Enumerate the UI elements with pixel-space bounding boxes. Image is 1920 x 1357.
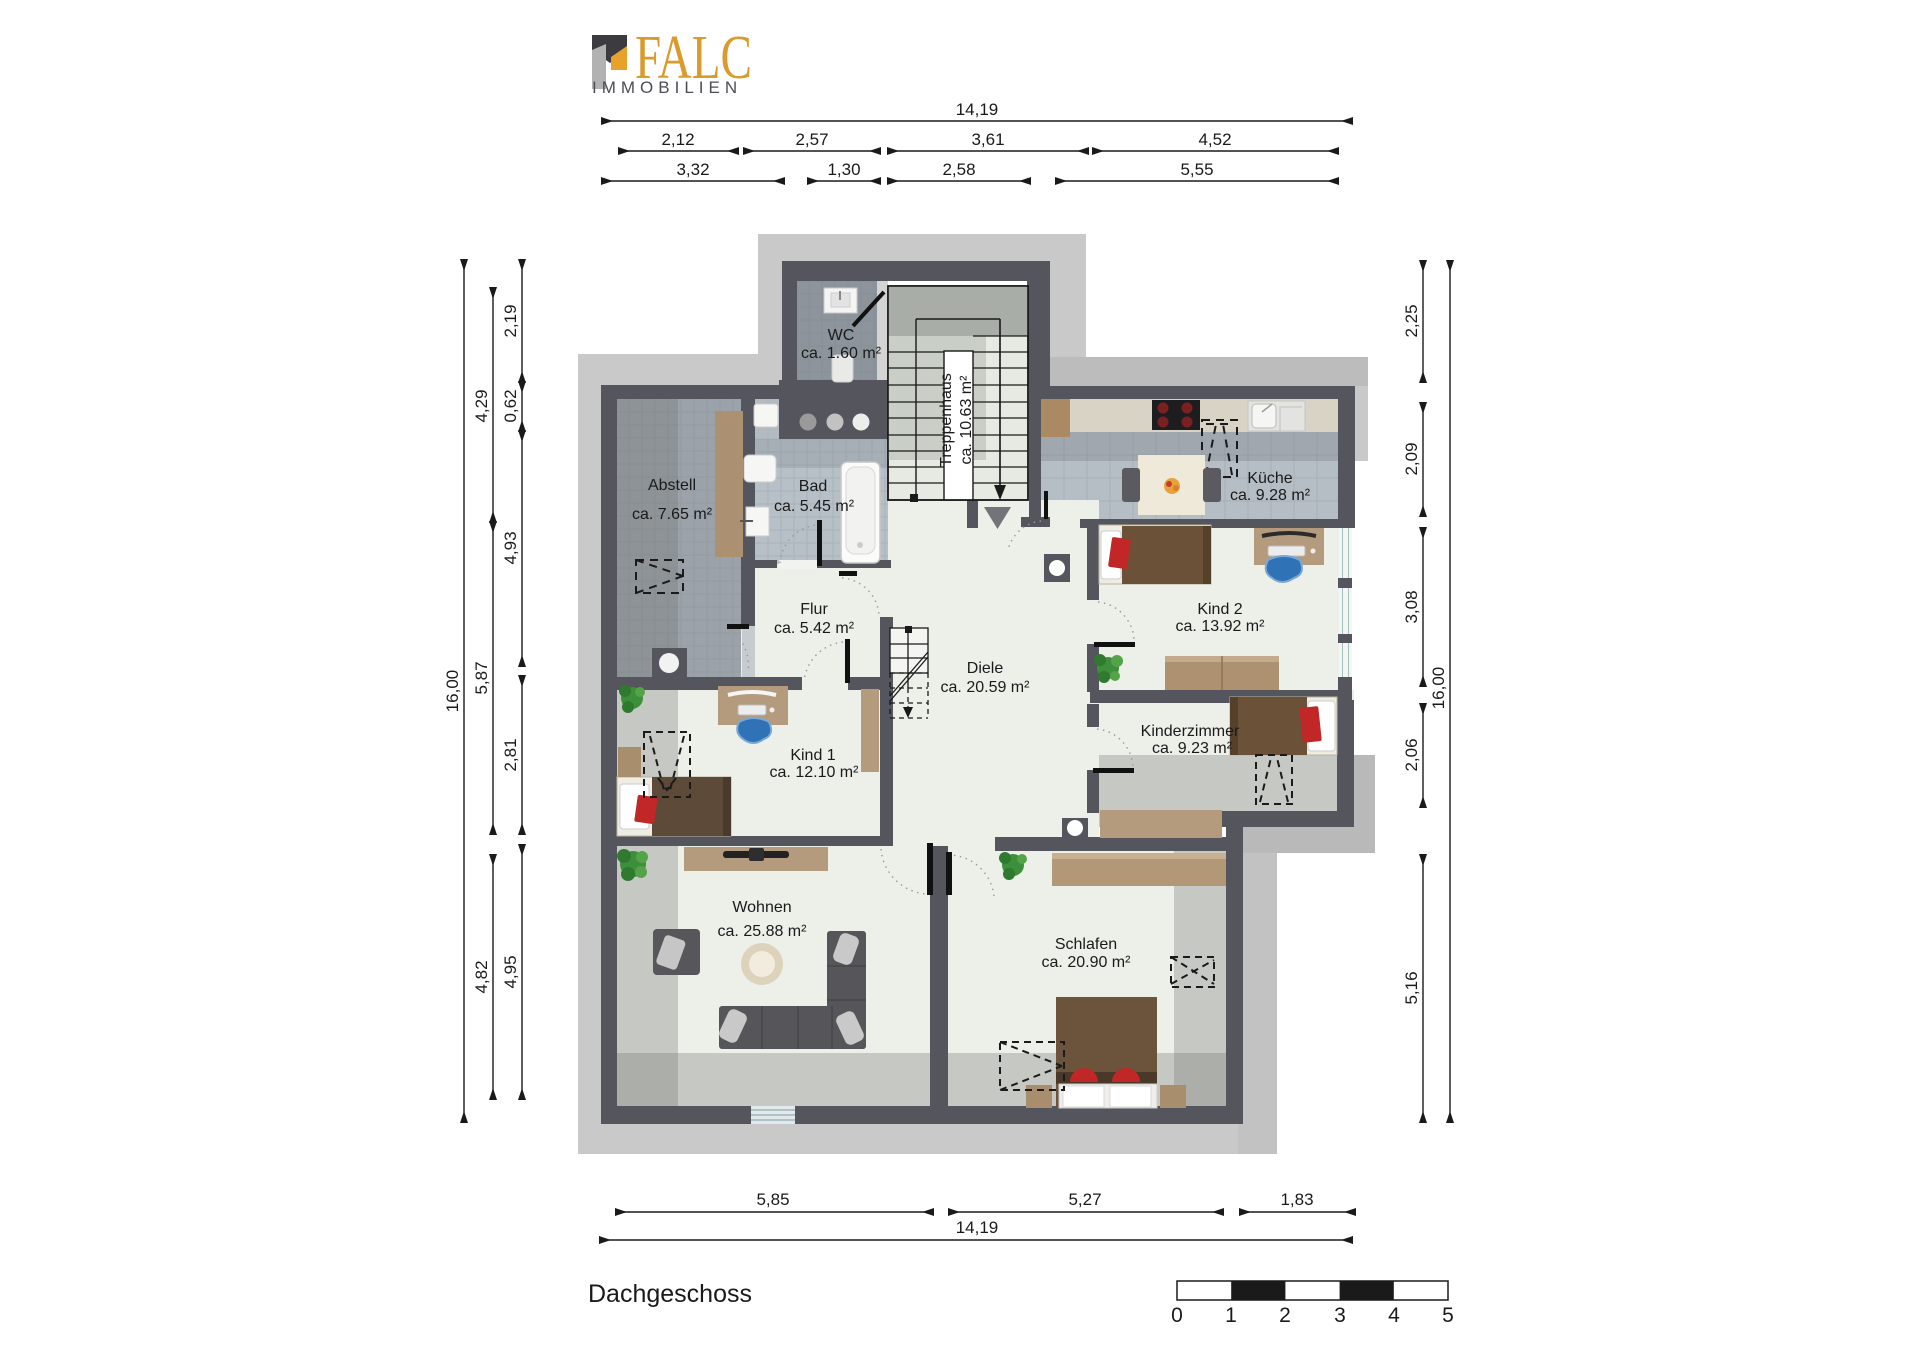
svg-text:2,81: 2,81	[501, 738, 520, 771]
svg-text:ca. 25.88 m²: ca. 25.88 m²	[718, 923, 808, 940]
svg-text:1,83: 1,83	[1280, 1190, 1313, 1209]
svg-text:Abstell: Abstell	[648, 477, 696, 494]
svg-text:3,32: 3,32	[676, 160, 709, 179]
svg-text:14,19: 14,19	[956, 1218, 999, 1237]
svg-text:4,52: 4,52	[1198, 130, 1231, 149]
svg-text:14,19: 14,19	[956, 100, 999, 119]
svg-text:ca. 13.92 m²: ca. 13.92 m²	[1176, 618, 1266, 635]
svg-text:16,00: 16,00	[443, 670, 462, 713]
svg-text:ca. 20.59 m²: ca. 20.59 m²	[941, 679, 1031, 696]
svg-text:Treppenhaus: Treppenhaus	[938, 373, 955, 467]
svg-text:3,61: 3,61	[971, 130, 1004, 149]
svg-text:WC: WC	[828, 327, 855, 344]
svg-text:5,87: 5,87	[472, 661, 491, 694]
svg-text:ca. 12.10 m²: ca. 12.10 m²	[770, 764, 860, 781]
svg-text:Diele: Diele	[967, 660, 1004, 677]
svg-text:5,16: 5,16	[1402, 971, 1421, 1004]
svg-text:ca. 9.28 m²: ca. 9.28 m²	[1230, 487, 1311, 504]
svg-text:4,82: 4,82	[472, 960, 491, 993]
svg-text:1,30: 1,30	[827, 160, 860, 179]
svg-text:IMMOBILIEN: IMMOBILIEN	[592, 78, 742, 97]
svg-text:0: 0	[1171, 1304, 1183, 1327]
svg-text:Kinderzimmer: Kinderzimmer	[1141, 723, 1240, 740]
svg-text:2,06: 2,06	[1402, 738, 1421, 771]
svg-text:2,12: 2,12	[661, 130, 694, 149]
svg-text:2,58: 2,58	[942, 160, 975, 179]
svg-text:4,29: 4,29	[472, 389, 491, 422]
svg-text:Kind 2: Kind 2	[1197, 601, 1242, 618]
svg-text:Schlafen: Schlafen	[1055, 936, 1117, 953]
svg-text:ca. 1.60 m²: ca. 1.60 m²	[801, 345, 882, 362]
svg-text:Wohnen: Wohnen	[732, 899, 791, 916]
svg-text:Kind 1: Kind 1	[790, 747, 835, 764]
svg-text:2,25: 2,25	[1402, 304, 1421, 337]
svg-text:ca. 7.65 m²: ca. 7.65 m²	[632, 506, 713, 523]
svg-text:0,62: 0,62	[501, 389, 520, 422]
svg-text:Küche: Küche	[1247, 470, 1292, 487]
svg-text:3,08: 3,08	[1402, 590, 1421, 623]
svg-text:ca. 9.23 m²: ca. 9.23 m²	[1152, 740, 1233, 757]
svg-text:4,93: 4,93	[501, 531, 520, 564]
svg-text:5,55: 5,55	[1180, 160, 1213, 179]
svg-text:Flur: Flur	[800, 601, 828, 618]
svg-text:2: 2	[1279, 1304, 1291, 1327]
svg-text:2,57: 2,57	[795, 130, 828, 149]
svg-text:ca. 5.42 m²: ca. 5.42 m²	[774, 620, 855, 637]
svg-text:ca. 10.63 m²: ca. 10.63 m²	[958, 375, 975, 465]
svg-text:4,95: 4,95	[501, 955, 520, 988]
svg-text:ca. 20.90 m²: ca. 20.90 m²	[1042, 954, 1132, 971]
svg-text:Bad: Bad	[799, 478, 827, 495]
svg-text:2,09: 2,09	[1402, 442, 1421, 475]
svg-text:1: 1	[1225, 1304, 1237, 1327]
svg-text:16,00: 16,00	[1429, 667, 1448, 710]
svg-text:2,19: 2,19	[501, 304, 520, 337]
svg-text:4: 4	[1388, 1304, 1400, 1327]
svg-text:ca. 5.45 m²: ca. 5.45 m²	[774, 498, 855, 515]
svg-text:3: 3	[1334, 1304, 1346, 1327]
svg-text:5,85: 5,85	[756, 1190, 789, 1209]
svg-text:Dachgeschoss: Dachgeschoss	[588, 1280, 752, 1308]
svg-text:5,27: 5,27	[1068, 1190, 1101, 1209]
svg-text:5: 5	[1442, 1304, 1454, 1327]
